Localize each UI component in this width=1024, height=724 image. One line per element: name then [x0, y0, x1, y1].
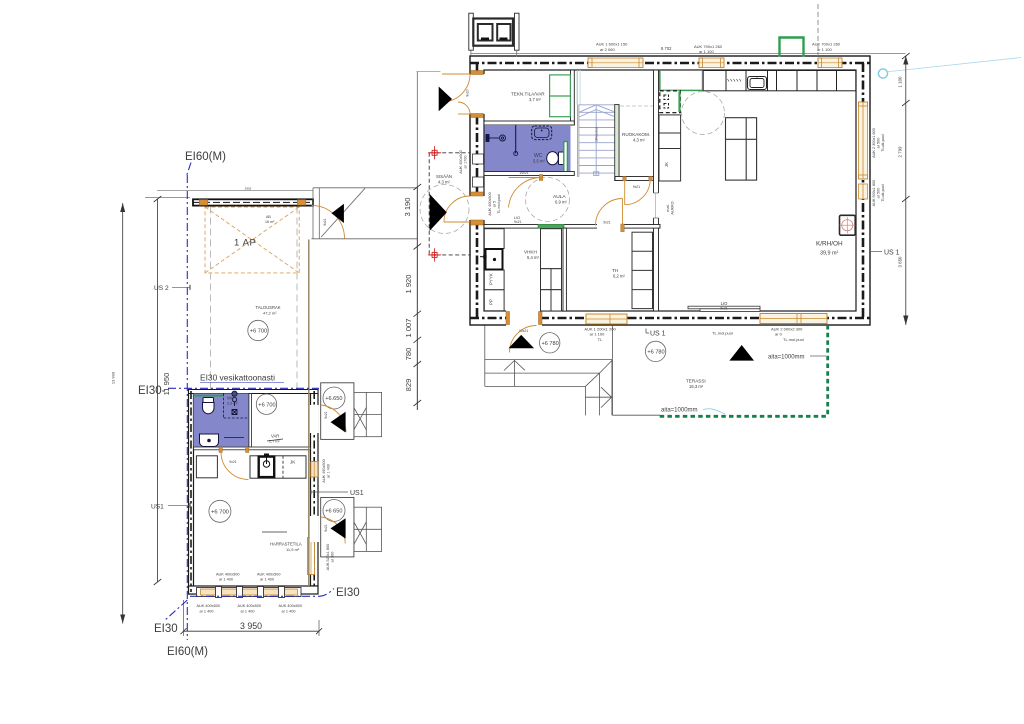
svg-text:US 1: US 1	[884, 250, 900, 257]
svg-text:4,3 m²: 4,3 m²	[633, 138, 645, 143]
svg-text:3 650: 3 650	[898, 256, 903, 268]
svg-text:5,4 m²: 5,4 m²	[527, 255, 539, 260]
svg-text:10x21: 10x21	[519, 171, 528, 175]
svg-text:ar 1 400: ar 1 400	[241, 610, 255, 614]
svg-text:AUK 400x500: AUK 400x500	[279, 604, 302, 608]
svg-text:13 990: 13 990	[111, 371, 116, 384]
svg-text:2902: 2902	[245, 187, 252, 191]
svg-text:6,9 m²: 6,9 m²	[555, 200, 567, 205]
svg-text:TH: TH	[612, 268, 618, 273]
svg-text:2,6 m²: 2,6 m²	[227, 402, 238, 406]
svg-text:ar 2 060: ar 2 060	[600, 47, 615, 52]
svg-text:18nousua: 18nousua	[595, 127, 599, 142]
svg-text:AUK 400x500: AUK 400x500	[488, 192, 492, 215]
svg-text:EI60(M): EI60(M)	[167, 646, 208, 658]
svg-text:AB: AB	[266, 215, 271, 219]
svg-text:JK: JK	[664, 162, 669, 167]
svg-text:AUK 520x1 800: AUK 520x1 800	[326, 544, 330, 571]
svg-text:SISÄÄN: SISÄÄN	[436, 174, 452, 179]
svg-text:VAR: VAR	[271, 434, 279, 439]
svg-text:9x21: 9x21	[720, 307, 727, 311]
svg-text:TL mol.puol: TL mol.puol	[783, 337, 804, 342]
svg-text:780: 780	[404, 348, 413, 361]
svg-text:ar 1 400: ar 1 400	[282, 610, 296, 614]
svg-text:+6.650: +6.650	[325, 396, 342, 402]
svg-text:3 950: 3 950	[240, 621, 262, 631]
svg-text:6,2 m²: 6,2 m²	[613, 274, 625, 279]
svg-text:16,3 m²: 16,3 m²	[689, 384, 704, 389]
svg-text:47,2 m²: 47,2 m²	[263, 311, 277, 316]
svg-text:ar 1 100: ar 1 100	[699, 49, 714, 54]
svg-text:11 950: 11 950	[162, 373, 171, 396]
svg-text:ar 1 400: ar 1 400	[219, 578, 233, 582]
svg-text:16 m²: 16 m²	[265, 220, 275, 224]
svg-text:EI30 vesikattoonasti: EI30 vesikattoonasti	[200, 373, 275, 383]
svg-text:LIO: LIO	[721, 301, 728, 306]
svg-text:EI60(M): EI60(M)	[185, 151, 226, 163]
svg-text:AUK 400x500: AUK 400x500	[257, 573, 280, 577]
svg-text:TLulk.puol: TLulk.puol	[881, 134, 885, 152]
svg-text:+6 700: +6 700	[211, 510, 229, 516]
svg-text:TALOUSRAK: TALOUSRAK	[256, 305, 281, 310]
svg-text:TLulk.puol: TLulk.puol	[881, 184, 885, 202]
svg-text:TL: TL	[598, 337, 603, 342]
svg-text:AUK 400x500: AUK 400x500	[459, 150, 463, 173]
svg-text:TL mol.puol: TL mol.puol	[497, 194, 501, 214]
svg-text:5,5 m²: 5,5 m²	[533, 159, 545, 164]
svg-text:US 2: US 2	[154, 285, 169, 292]
svg-text:9x21: 9x21	[603, 221, 610, 225]
svg-text:ar 500: ar 500	[877, 138, 881, 149]
svg-text:K/RH/OH: K/RH/OH	[816, 241, 843, 248]
svg-text:829: 829	[404, 379, 413, 392]
svg-text:EI30: EI30	[154, 623, 178, 635]
svg-text:1 920: 1 920	[404, 274, 413, 293]
svg-text:aita=1000mm: aita=1000mm	[768, 355, 805, 361]
svg-text:PP: PP	[489, 299, 494, 305]
svg-text:ar 5: ar 5	[493, 201, 497, 208]
svg-text:US 1: US 1	[650, 331, 666, 338]
svg-text:ar 1 400: ar 1 400	[200, 610, 214, 614]
svg-text:10x21: 10x21	[519, 329, 528, 333]
svg-text:9x21: 9x21	[633, 185, 640, 189]
svg-text:ar 500: ar 500	[877, 188, 881, 199]
svg-text:AUK 500x1 800: AUK 500x1 800	[872, 180, 876, 207]
svg-text:aita=1000mm: aita=1000mm	[661, 408, 698, 414]
svg-text:AUK 400x500: AUK 400x500	[238, 604, 261, 608]
svg-text:JK: JK	[290, 460, 296, 465]
svg-text:9x21: 9x21	[514, 220, 521, 224]
svg-text:9x20: 9x20	[466, 89, 470, 96]
svg-text:AUK 700x1 260: AUK 700x1 260	[812, 42, 841, 47]
svg-text:ar 0: ar 0	[775, 332, 783, 337]
svg-text:AUK 2 300x1 800: AUK 2 300x1 800	[872, 128, 876, 158]
svg-text:ar 1700: ar 1700	[464, 156, 468, 169]
svg-text:8 702: 8 702	[661, 46, 672, 51]
svg-text:WC: WC	[227, 396, 234, 401]
svg-text:1 100: 1 100	[898, 76, 903, 88]
svg-text:mat.: mat.	[666, 204, 670, 211]
svg-text:ar 1 400: ar 1 400	[260, 578, 274, 582]
svg-text:4,3 m²: 4,3 m²	[438, 180, 450, 185]
svg-text:1 007: 1 007	[404, 318, 413, 337]
svg-text:3,7 m²: 3,7 m²	[529, 97, 541, 102]
svg-text:ar 1 100: ar 1 100	[817, 47, 832, 52]
svg-text:TL.mol.puol: TL.mol.puol	[712, 331, 733, 336]
svg-text:TERASSI: TERASSI	[686, 379, 706, 384]
svg-text:US1: US1	[350, 490, 364, 497]
svg-text:ar 1 100: ar 1 100	[590, 332, 605, 337]
svg-text:+6 780: +6 780	[647, 350, 664, 356]
svg-text:9x21: 9x21	[324, 411, 328, 418]
svg-text:AUK 400x500: AUK 400x500	[216, 573, 239, 577]
svg-text:AUK 1 600x1 150: AUK 1 600x1 150	[596, 42, 628, 47]
svg-text:+6 700: +6 700	[258, 402, 275, 408]
svg-text:AUK 400x500: AUK 400x500	[197, 604, 220, 608]
svg-text:ar 1 400: ar 1 400	[327, 464, 331, 478]
svg-text:ar 300: ar 300	[331, 552, 335, 563]
svg-text:9x21: 9x21	[324, 524, 328, 531]
svg-text:TEKN.TILA/VAR: TEKN.TILA/VAR	[511, 92, 545, 97]
svg-text:HARRASTETILA: HARRASTETILA	[270, 542, 302, 547]
svg-text:VHKH: VHKH	[524, 250, 537, 255]
svg-text:11,9 m²: 11,9 m²	[286, 547, 300, 552]
svg-text:EI30: EI30	[336, 587, 360, 599]
svg-text:9x21: 9x21	[229, 460, 236, 464]
svg-text:9x21: 9x21	[323, 218, 327, 225]
svg-text:3 190: 3 190	[403, 197, 412, 216]
svg-text:39,9 m²: 39,9 m²	[820, 251, 838, 257]
svg-text:PYYK: PYYK	[489, 273, 494, 285]
svg-text:RUOKAKOM.: RUOKAKOM.	[622, 132, 650, 137]
svg-text:+6 700: +6 700	[250, 329, 267, 335]
svg-text:2 799: 2 799	[898, 146, 903, 158]
svg-text:+6 650: +6 650	[325, 509, 342, 515]
svg-text:AUK 490x500: AUK 490x500	[322, 459, 326, 482]
svg-text:1 AP: 1 AP	[234, 238, 256, 249]
svg-text:AUKKO: AUKKO	[671, 201, 675, 214]
svg-text:+6 780: +6 780	[542, 341, 559, 347]
